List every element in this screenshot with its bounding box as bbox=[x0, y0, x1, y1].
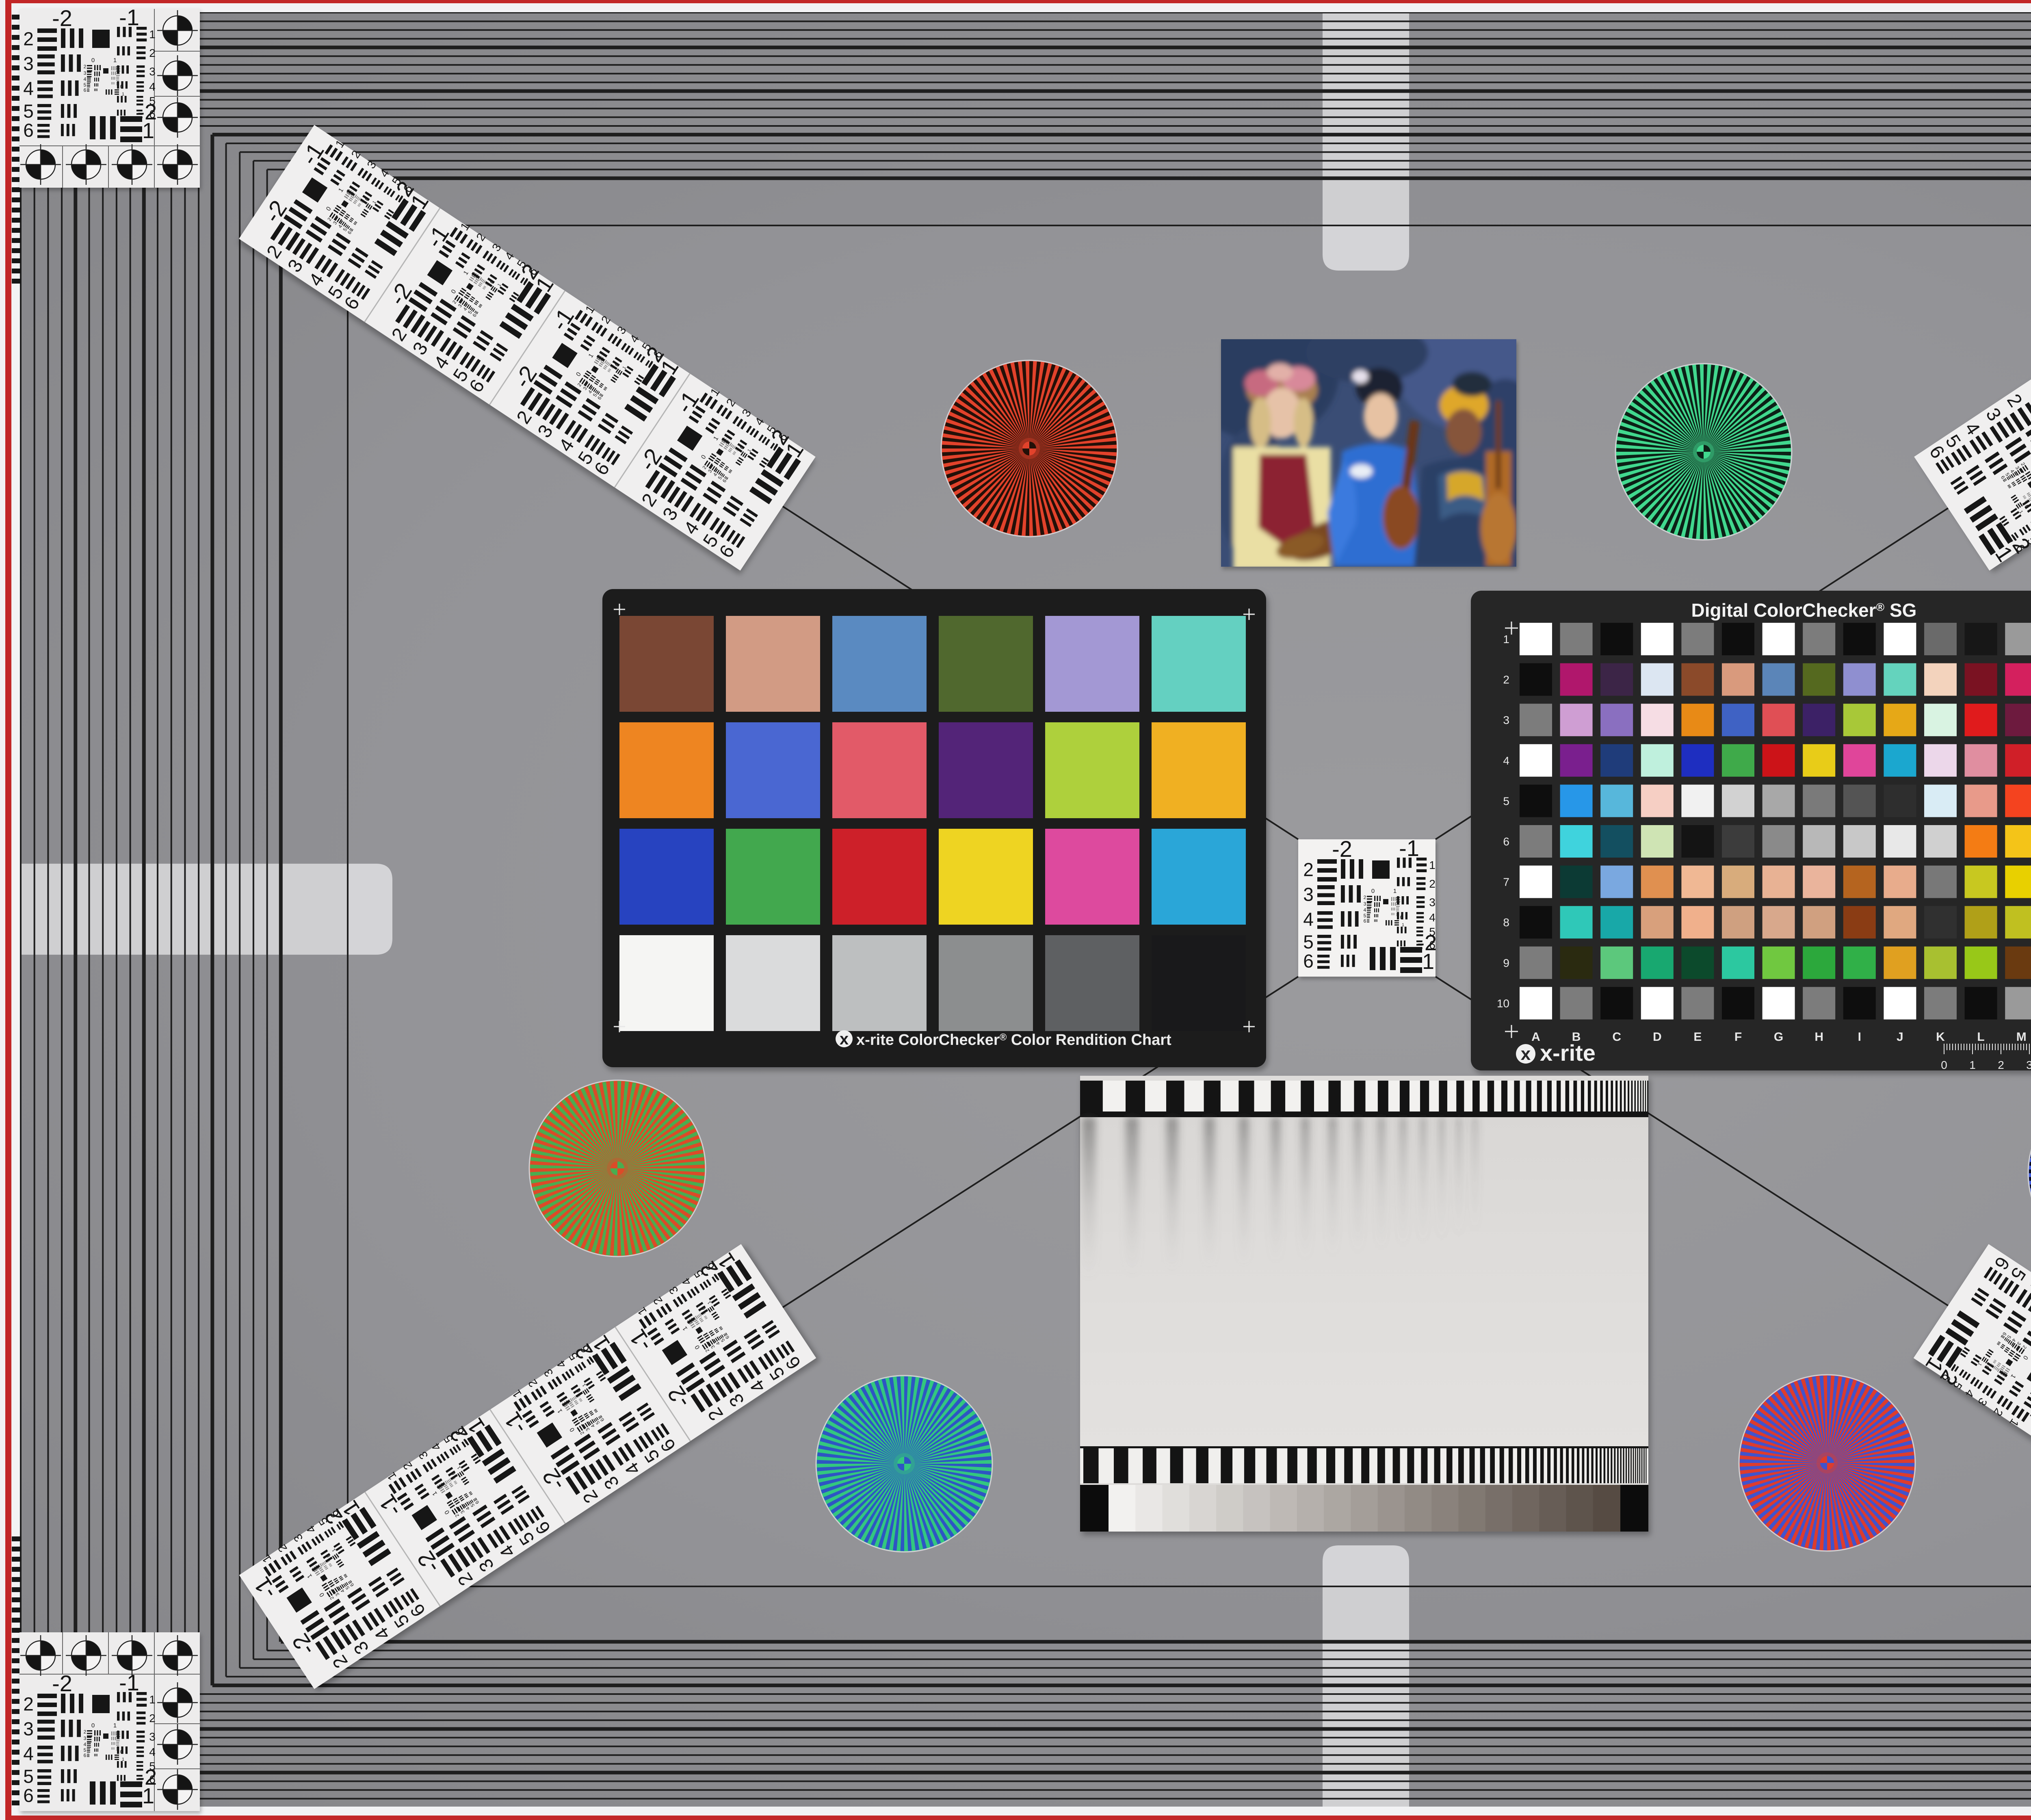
svg-text:C: C bbox=[1612, 1030, 1621, 1044]
svg-text:L: L bbox=[1977, 1030, 1984, 1044]
svg-text:I: I bbox=[1858, 1030, 1861, 1044]
svg-text:8: 8 bbox=[1503, 916, 1509, 929]
svg-text:7: 7 bbox=[1503, 876, 1509, 888]
svg-text:9: 9 bbox=[1503, 957, 1509, 969]
svg-text:3: 3 bbox=[1503, 714, 1509, 726]
svg-text:M: M bbox=[2016, 1030, 2027, 1044]
svg-text:E: E bbox=[1693, 1030, 1702, 1044]
svg-text:G: G bbox=[1774, 1030, 1783, 1044]
svg-text:1: 1 bbox=[1503, 633, 1509, 646]
svg-text:K: K bbox=[1936, 1030, 1945, 1044]
svg-text:3: 3 bbox=[2026, 1059, 2031, 1071]
svg-text:6: 6 bbox=[1503, 835, 1509, 848]
svg-text:5: 5 bbox=[1503, 795, 1509, 807]
svg-text:2: 2 bbox=[1503, 674, 1509, 686]
svg-text:10: 10 bbox=[1497, 997, 1509, 1010]
svg-text:1: 1 bbox=[1969, 1059, 1976, 1071]
svg-text:x: x bbox=[840, 1030, 849, 1048]
svg-text:D: D bbox=[1653, 1030, 1662, 1044]
svg-text:2: 2 bbox=[1998, 1059, 2004, 1071]
svg-text:H: H bbox=[1814, 1030, 1823, 1044]
svg-text:F: F bbox=[1734, 1030, 1742, 1044]
svg-text:0: 0 bbox=[1941, 1059, 1947, 1071]
svg-text:4: 4 bbox=[1503, 754, 1509, 767]
svg-text:x-rite ColorChecker® Color R: x-rite ColorChecker® Color Rendition Cha… bbox=[856, 1031, 1171, 1049]
svg-text:x-rite: x-rite bbox=[1540, 1040, 1596, 1066]
svg-text:A: A bbox=[1531, 1030, 1540, 1044]
svg-text:J: J bbox=[1897, 1030, 1903, 1044]
svg-text:x: x bbox=[1521, 1044, 1531, 1064]
